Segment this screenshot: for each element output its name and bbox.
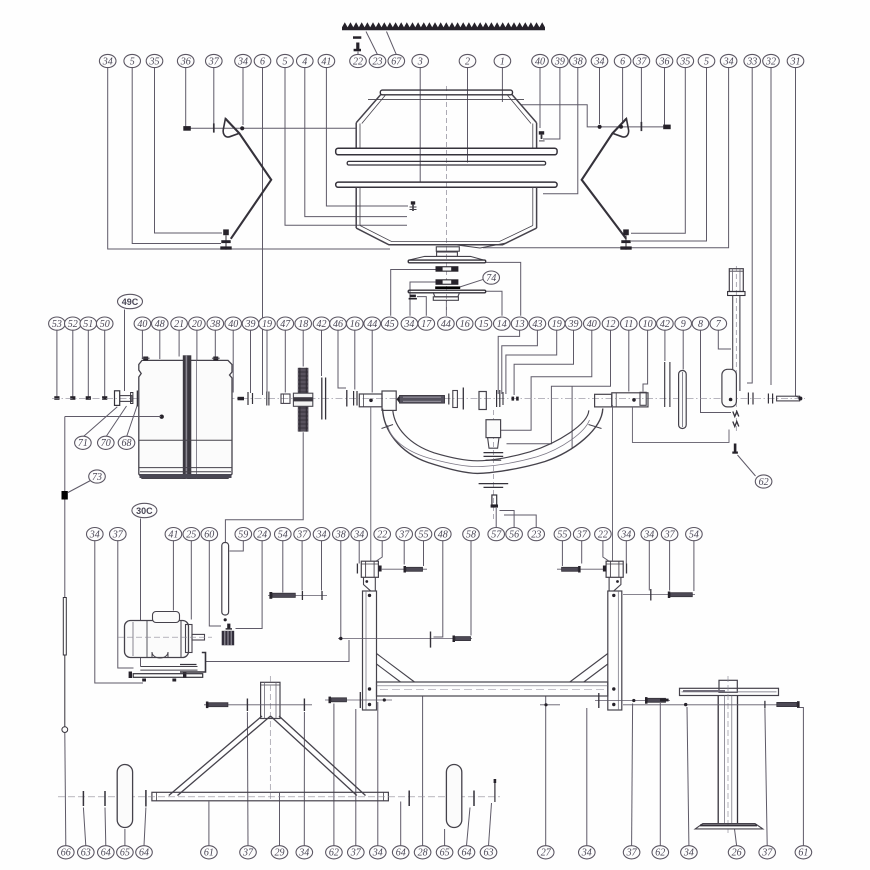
svg-text:62: 62	[655, 848, 665, 859]
svg-text:50: 50	[100, 319, 110, 330]
svg-text:34: 34	[89, 530, 100, 541]
svg-text:42: 42	[660, 319, 670, 330]
svg-text:55: 55	[419, 530, 429, 541]
svg-text:57: 57	[491, 530, 502, 541]
svg-text:37: 37	[112, 530, 124, 541]
svg-text:64: 64	[462, 848, 472, 859]
svg-text:66: 66	[61, 848, 71, 859]
svg-text:40: 40	[587, 319, 597, 330]
svg-text:65: 65	[440, 848, 450, 859]
svg-text:71: 71	[78, 438, 88, 449]
svg-text:54: 54	[689, 530, 699, 541]
svg-text:62: 62	[329, 848, 339, 859]
svg-text:74: 74	[486, 273, 496, 284]
svg-text:38: 38	[572, 56, 583, 67]
svg-text:34: 34	[353, 530, 364, 541]
svg-text:30C: 30C	[136, 506, 153, 516]
svg-text:65: 65	[120, 848, 130, 859]
svg-text:26: 26	[732, 848, 742, 859]
svg-text:44: 44	[367, 319, 377, 330]
svg-text:63: 63	[81, 848, 91, 859]
svg-text:54: 54	[278, 530, 288, 541]
svg-text:40: 40	[137, 319, 147, 330]
svg-text:51: 51	[83, 319, 93, 330]
svg-text:6: 6	[260, 56, 265, 67]
svg-text:11: 11	[624, 319, 633, 330]
svg-text:39: 39	[245, 319, 256, 330]
svg-text:64: 64	[396, 848, 406, 859]
svg-text:34: 34	[594, 56, 605, 67]
svg-text:19: 19	[552, 319, 562, 330]
svg-text:40: 40	[228, 319, 238, 330]
svg-text:37: 37	[664, 530, 676, 541]
svg-text:6: 6	[620, 56, 625, 67]
svg-text:63: 63	[484, 848, 494, 859]
svg-text:34: 34	[620, 530, 631, 541]
svg-text:14: 14	[497, 319, 507, 330]
svg-text:16: 16	[350, 319, 360, 330]
svg-text:34: 34	[102, 56, 113, 67]
svg-text:21: 21	[174, 319, 184, 330]
svg-text:38: 38	[335, 530, 346, 541]
svg-text:38: 38	[209, 319, 220, 330]
svg-text:34: 34	[643, 530, 654, 541]
svg-text:34: 34	[683, 848, 694, 859]
svg-text:10: 10	[643, 319, 653, 330]
svg-text:46: 46	[333, 319, 343, 330]
svg-text:15: 15	[479, 319, 489, 330]
svg-text:47: 47	[280, 319, 291, 330]
svg-text:39: 39	[554, 56, 565, 67]
svg-text:52: 52	[68, 319, 78, 330]
svg-text:35: 35	[149, 56, 160, 67]
svg-text:37: 37	[576, 530, 588, 541]
svg-text:34: 34	[372, 848, 383, 859]
svg-text:64: 64	[139, 848, 149, 859]
svg-text:40: 40	[535, 56, 545, 67]
svg-text:18: 18	[298, 319, 308, 330]
svg-text:1: 1	[500, 56, 505, 67]
svg-text:13: 13	[515, 319, 525, 330]
svg-text:23: 23	[531, 530, 541, 541]
svg-text:29: 29	[275, 848, 285, 859]
svg-text:34: 34	[316, 530, 327, 541]
svg-text:27: 27	[541, 848, 552, 859]
svg-text:55: 55	[557, 530, 567, 541]
svg-text:36: 36	[659, 56, 670, 67]
svg-text:2: 2	[465, 56, 470, 67]
svg-text:23: 23	[373, 56, 383, 67]
svg-text:24: 24	[257, 530, 267, 541]
svg-text:43: 43	[532, 319, 542, 330]
svg-text:73: 73	[92, 472, 102, 483]
svg-text:5: 5	[283, 56, 288, 67]
svg-text:3: 3	[417, 56, 423, 67]
svg-text:41: 41	[168, 530, 178, 541]
svg-text:37: 37	[296, 530, 308, 541]
svg-text:22: 22	[377, 530, 387, 541]
svg-text:70: 70	[101, 438, 111, 449]
svg-text:32: 32	[765, 56, 776, 67]
svg-text:59: 59	[238, 530, 248, 541]
svg-text:5: 5	[130, 56, 135, 67]
svg-text:34: 34	[581, 848, 592, 859]
svg-text:17: 17	[421, 319, 432, 330]
svg-text:8: 8	[698, 319, 703, 330]
svg-text:5: 5	[704, 56, 709, 67]
svg-text:61: 61	[204, 848, 214, 859]
svg-text:37: 37	[761, 848, 773, 859]
svg-text:4: 4	[302, 56, 307, 67]
svg-text:56: 56	[509, 530, 519, 541]
svg-text:44: 44	[441, 319, 451, 330]
svg-text:42: 42	[317, 319, 327, 330]
svg-text:45: 45	[385, 319, 395, 330]
svg-text:53: 53	[52, 319, 62, 330]
svg-text:37: 37	[242, 848, 254, 859]
svg-text:25: 25	[186, 530, 196, 541]
svg-text:35: 35	[679, 56, 690, 67]
svg-text:31: 31	[790, 56, 801, 67]
svg-text:58: 58	[466, 530, 476, 541]
svg-text:34: 34	[298, 848, 309, 859]
svg-text:9: 9	[681, 319, 686, 330]
svg-text:36: 36	[180, 56, 191, 67]
svg-text:37: 37	[626, 848, 638, 859]
svg-text:68: 68	[122, 438, 132, 449]
svg-text:37: 37	[398, 530, 410, 541]
svg-text:19: 19	[262, 319, 272, 330]
svg-text:22: 22	[353, 56, 363, 67]
svg-text:33: 33	[746, 56, 757, 67]
svg-text:34: 34	[237, 56, 248, 67]
svg-text:62: 62	[759, 477, 769, 488]
svg-text:34: 34	[723, 56, 734, 67]
svg-text:48: 48	[155, 319, 165, 330]
svg-text:37: 37	[208, 56, 220, 67]
svg-text:60: 60	[204, 530, 214, 541]
svg-text:41: 41	[321, 56, 331, 67]
svg-text:12: 12	[606, 319, 616, 330]
svg-text:16: 16	[460, 319, 470, 330]
svg-text:37: 37	[635, 56, 647, 67]
svg-text:20: 20	[192, 319, 202, 330]
svg-text:64: 64	[101, 848, 111, 859]
svg-text:34: 34	[403, 319, 414, 330]
svg-text:48: 48	[438, 530, 448, 541]
svg-text:28: 28	[418, 848, 428, 859]
svg-text:22: 22	[598, 530, 608, 541]
svg-text:49C: 49C	[122, 297, 139, 307]
svg-text:39: 39	[568, 319, 579, 330]
svg-text:61: 61	[798, 848, 808, 859]
svg-text:37: 37	[350, 848, 362, 859]
svg-text:67: 67	[391, 56, 402, 67]
